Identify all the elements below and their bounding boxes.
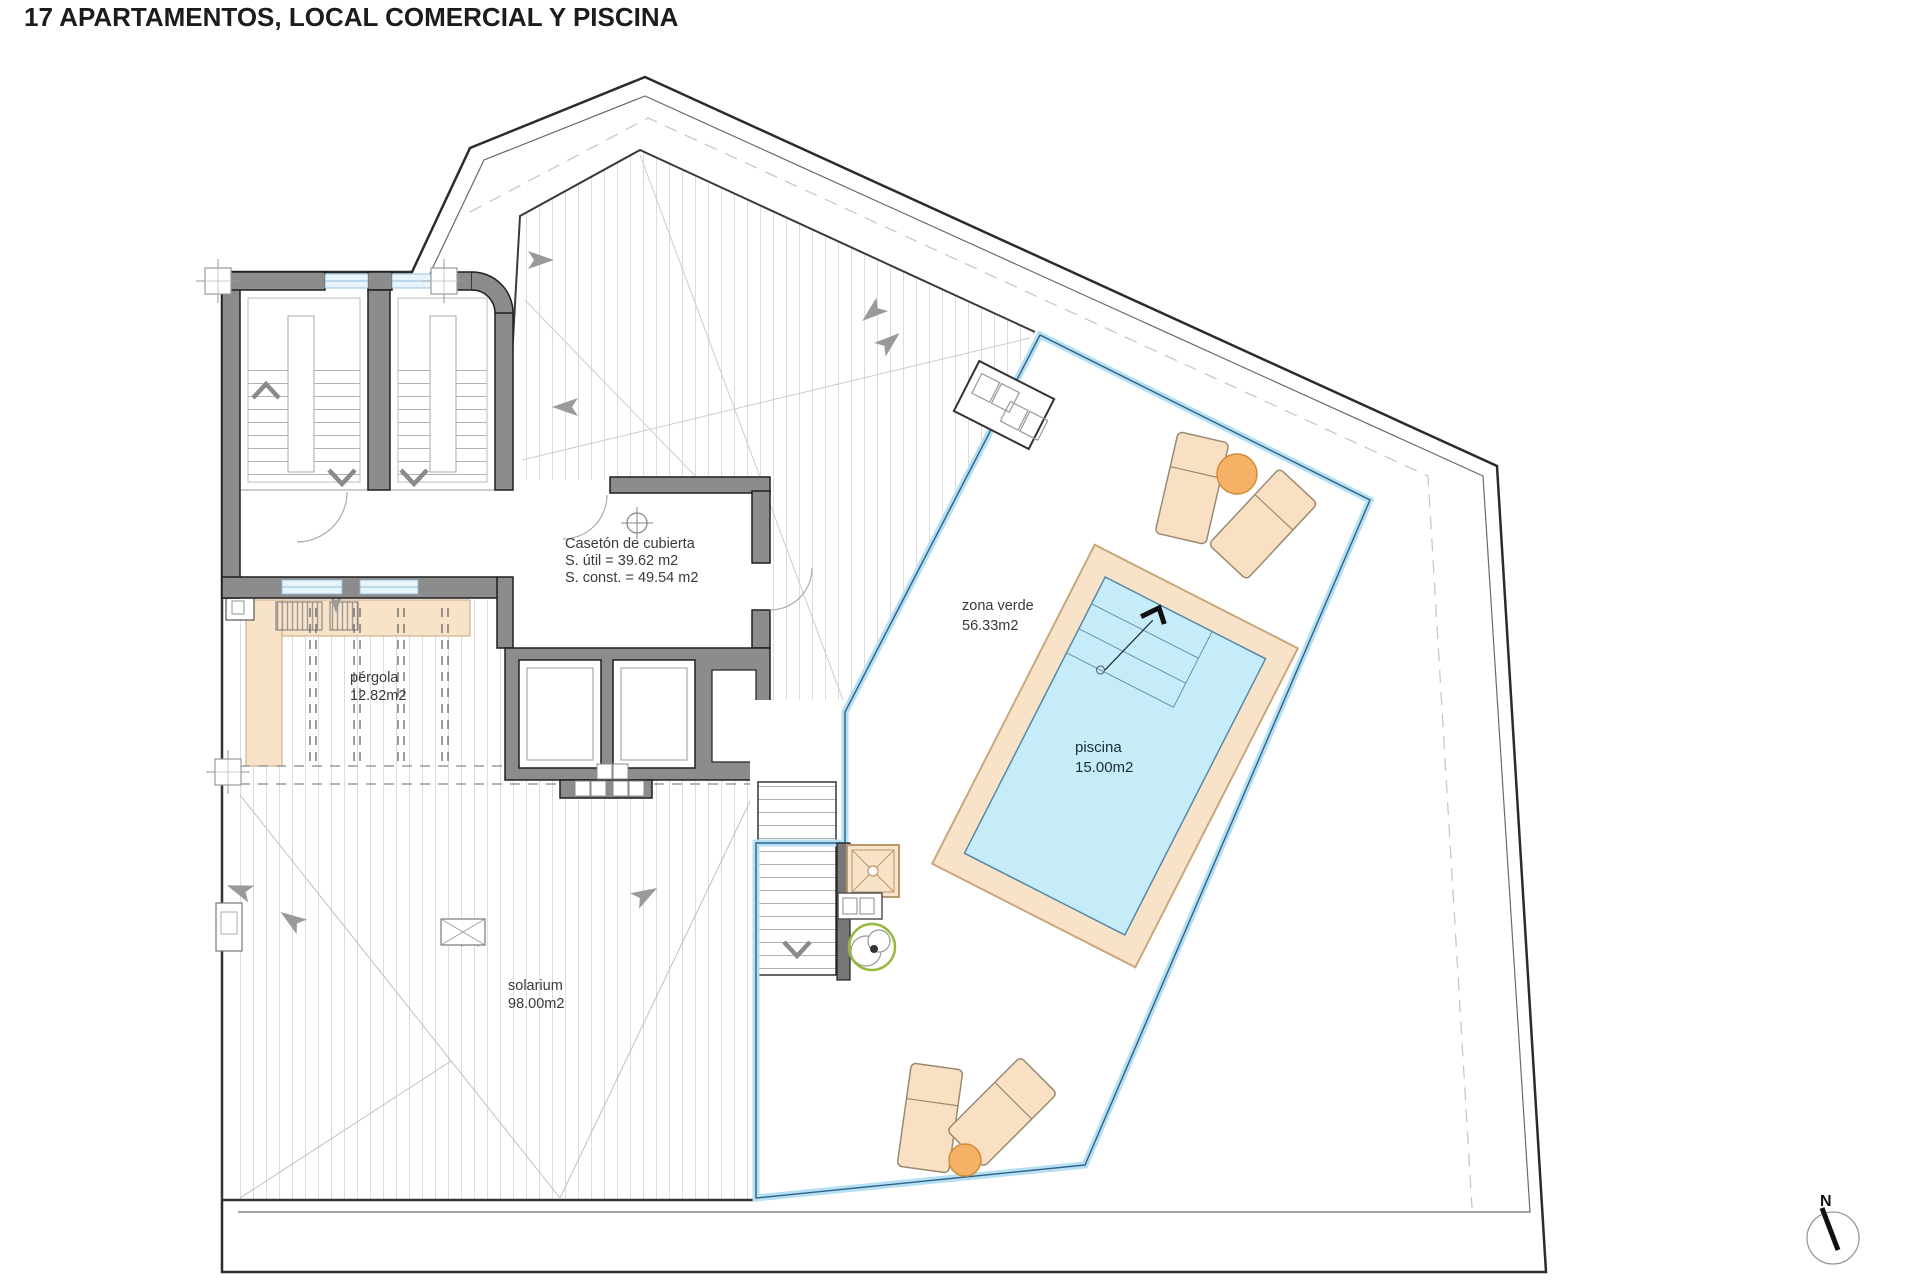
stairs-down (758, 782, 836, 975)
caseton-util-label: S. útil = 39.62 m2 (565, 553, 678, 569)
pergola-area-label: 12.82m2 (350, 688, 406, 704)
zona-verde-label: zona verde (962, 598, 1034, 614)
wall (497, 577, 513, 648)
drain-box (226, 596, 254, 620)
piscina-label: piscina (1075, 739, 1122, 756)
zona-verde-area-label: 56.33m2 (962, 618, 1018, 634)
drain-box (838, 893, 882, 919)
piscina-area-label: 15.00m2 (1075, 759, 1133, 776)
wall (752, 610, 770, 648)
outdoor-shower (847, 845, 899, 897)
elevator-shafts (505, 648, 770, 798)
wall (222, 272, 240, 598)
caseton-const-label: S. const. = 49.54 m2 (565, 570, 698, 586)
shaft-room (712, 670, 756, 762)
caseton-room: Casetón de cubierta S. útil = 39.62 m2 S… (497, 477, 812, 648)
side-table (949, 1144, 981, 1176)
elevator-shaft (519, 660, 601, 768)
caseton-label: Casetón de cubierta (565, 536, 696, 552)
solarium-area-label: 98.00m2 (508, 996, 564, 1012)
wall (495, 313, 513, 490)
north-label: N (1820, 1193, 1832, 1210)
wall (368, 290, 390, 490)
wall (368, 272, 392, 290)
floor-plan-svg: solarium 98.00m2 pérgola 12.82m2 (0, 0, 1920, 1280)
solarium-label: solarium (508, 978, 563, 994)
wall (610, 477, 770, 493)
pergola-label: pérgola (350, 670, 399, 686)
elevator-shaft (613, 660, 695, 768)
floor-plan-page: 17 APARTAMENTOS, LOCAL COMERCIAL Y PISCI… (0, 0, 1920, 1280)
side-table (1217, 454, 1257, 494)
wall (752, 491, 770, 563)
wall-vent (216, 903, 242, 951)
north-compass: N (1807, 1193, 1859, 1264)
